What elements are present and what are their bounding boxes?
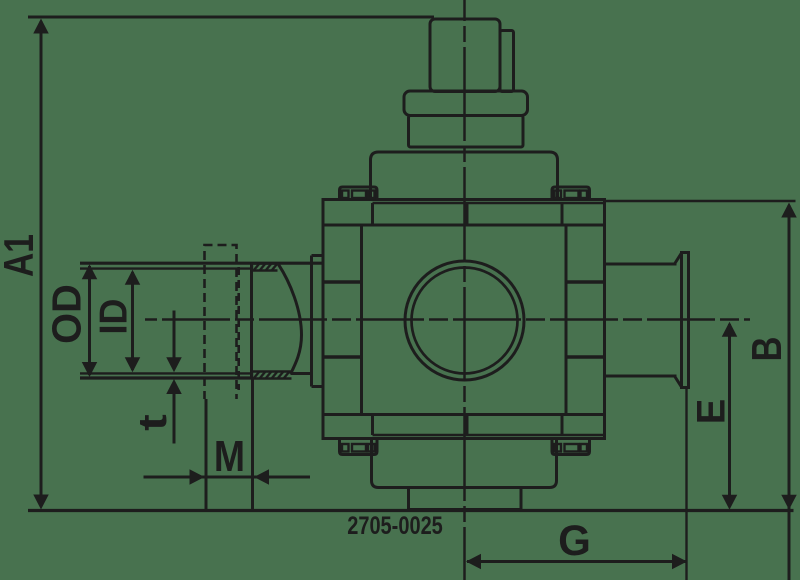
svg-text:M: M bbox=[214, 431, 245, 481]
svg-text:B: B bbox=[744, 337, 791, 362]
svg-text:2705-0025: 2705-0025 bbox=[347, 512, 443, 540]
svg-text:ID: ID bbox=[91, 299, 135, 335]
svg-text:A1: A1 bbox=[0, 234, 43, 277]
svg-text:t: t bbox=[130, 414, 175, 431]
svg-text:E: E bbox=[689, 399, 733, 424]
svg-text:G: G bbox=[558, 517, 591, 565]
svg-text:OD: OD bbox=[43, 284, 90, 344]
